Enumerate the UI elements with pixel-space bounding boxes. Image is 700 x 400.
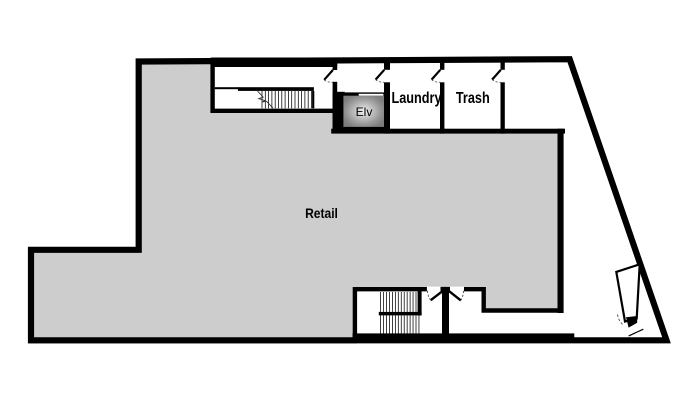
svg-text:Trash: Trash	[456, 90, 490, 107]
svg-text:Laundry: Laundry	[391, 90, 441, 107]
svg-text:Retail: Retail	[305, 205, 338, 221]
svg-text:Elv: Elv	[356, 105, 373, 119]
